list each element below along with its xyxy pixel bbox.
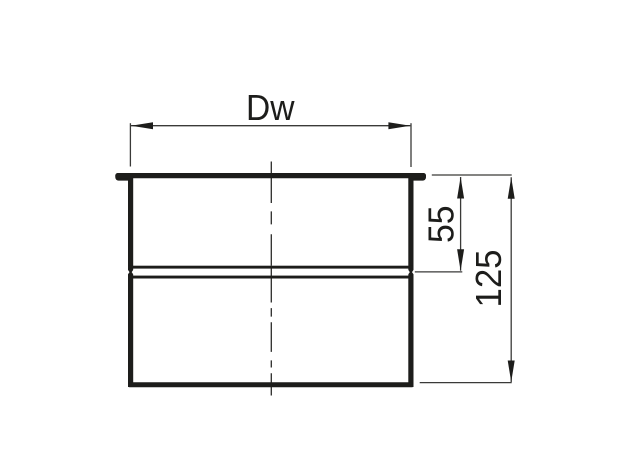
svg-text:125: 125	[468, 250, 509, 308]
svg-text:Dw: Dw	[246, 87, 295, 128]
svg-text:55: 55	[421, 206, 462, 244]
